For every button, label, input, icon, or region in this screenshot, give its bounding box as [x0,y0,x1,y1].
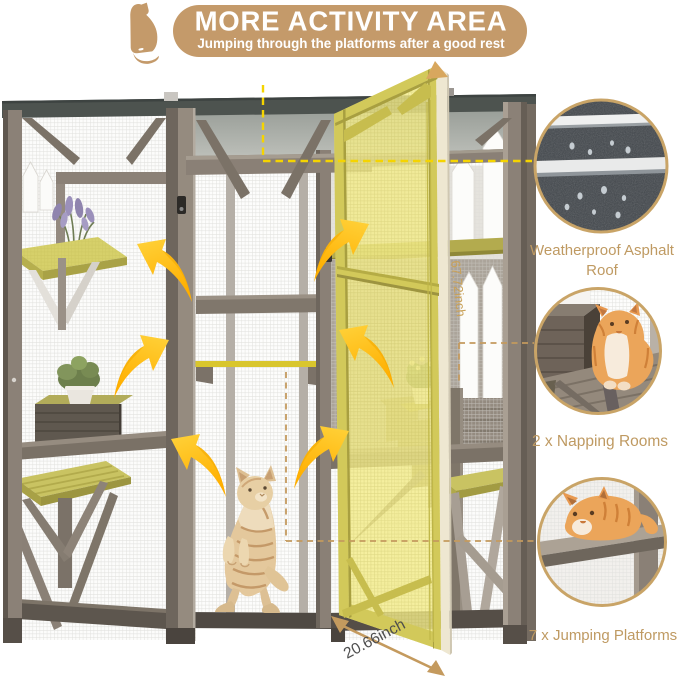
svg-text:Jumping through the platforms: Jumping through the platforms after a go… [197,36,505,51]
svg-text:2 x Napping Rooms: 2 x Napping Rooms [532,433,668,450]
svg-text:MORE ACTIVITY AREA: MORE ACTIVITY AREA [195,6,508,37]
svg-text:Weatherproof Asphalt: Weatherproof Asphalt [530,242,675,259]
svg-text:7 x Jumping Platforms: 7 x Jumping Platforms [529,627,677,644]
svg-text:Roof: Roof [586,262,619,279]
